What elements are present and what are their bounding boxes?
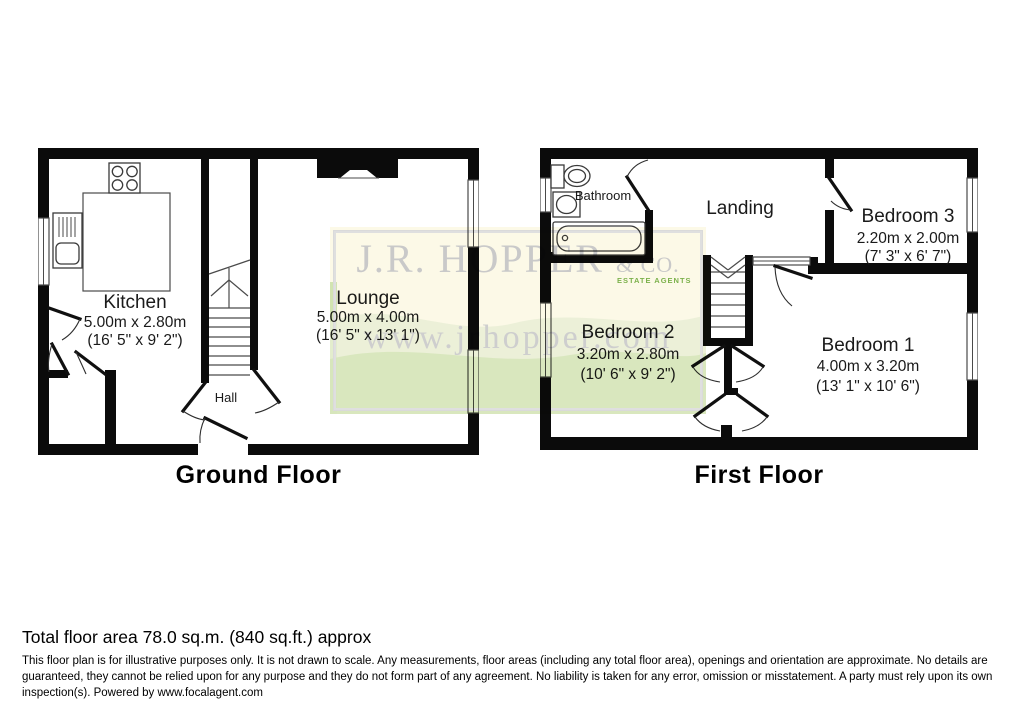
bedroom1-lower-door [738, 395, 767, 431]
kitchen-dims-ft: (16' 5" x 9' 2") [87, 332, 182, 349]
bedroom3-dims-m: 2.20m x 2.00m [857, 230, 960, 247]
bedroom1-door [775, 266, 811, 306]
cupboard-door-right [732, 346, 763, 382]
store-door-2 [76, 352, 105, 374]
staircase-first [711, 257, 745, 327]
disclaimer-text: This floor plan is for illustrative purp… [22, 653, 1014, 701]
bedroom1-label: Bedroom 1 [822, 335, 915, 356]
window-icon [540, 178, 551, 212]
chimney-breast [317, 159, 398, 178]
bathroom-label: Bathroom [575, 188, 631, 203]
store-door [48, 344, 68, 374]
watermark-amp: & CO. [616, 252, 680, 277]
bedroom3-door [829, 178, 851, 210]
partition-screen [753, 257, 810, 265]
hall-lounge-door [254, 370, 279, 413]
watermark-title: J.R. HOPPER & CO. [330, 235, 706, 282]
first-floor-title: First Floor [540, 461, 978, 490]
kitchen-fixtures [53, 163, 170, 291]
bedroom1-dims-ft: (13' 1" x 10' 6") [816, 378, 920, 395]
window-icon [967, 178, 978, 232]
front-door [200, 418, 246, 443]
agency-watermark: J.R. HOPPER & CO. ESTATE AGENTS www.jrho… [330, 227, 706, 414]
bedroom3-dims-ft: (7' 3" x 6' 7") [865, 248, 952, 265]
kitchen-label: Kitchen [103, 292, 166, 313]
hall-label: Hall [215, 390, 238, 405]
rear-door [49, 308, 80, 340]
landing-label: Landing [706, 198, 774, 219]
hob-icon [109, 163, 140, 193]
sink-icon [53, 213, 82, 268]
watermark-badge: ESTATE AGENTS [617, 276, 692, 285]
toilet-icon [551, 165, 590, 188]
bedroom1-dims-m: 4.00m x 3.20m [817, 358, 920, 375]
total-floor-area: Total floor area 78.0 sq.m. (840 sq.ft.)… [22, 627, 371, 648]
window-icon [38, 218, 49, 285]
bedroom3-label: Bedroom 3 [862, 206, 955, 227]
kitchen-dims-m: 5.00m x 2.80m [84, 314, 187, 331]
worktop [83, 193, 170, 291]
watermark-url: www.jrhopper.com [330, 319, 706, 357]
bathroom-door [627, 160, 649, 211]
floorplan-page: Kitchen 5.00m x 2.80m (16' 5" x 9' 2") L… [0, 0, 1024, 716]
staircase [209, 260, 250, 375]
hall-kitchen-door [183, 383, 205, 420]
ground-floor-title: Ground Floor [38, 461, 479, 490]
window-icon [967, 313, 978, 380]
